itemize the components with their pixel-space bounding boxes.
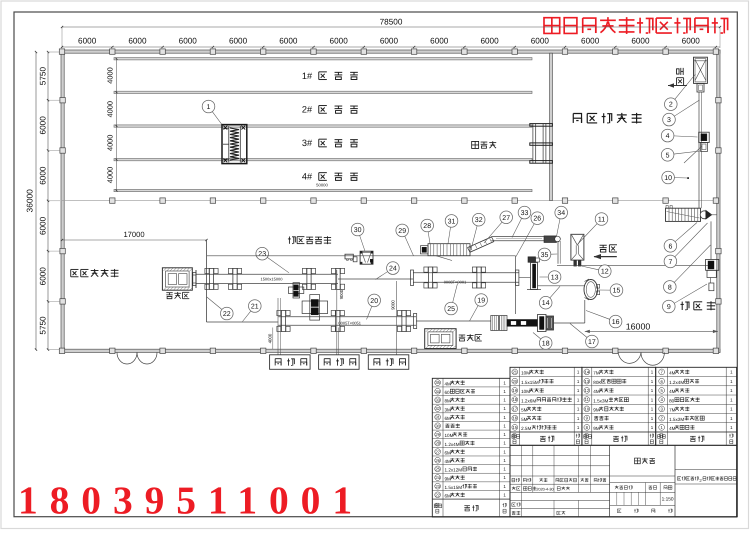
svg-text:2: 2 (669, 102, 673, 109)
svg-text:15: 15 (512, 425, 517, 430)
svg-text:9000: 9000 (339, 289, 344, 299)
svg-text:24: 24 (389, 266, 397, 273)
svg-text:6000: 6000 (380, 37, 399, 46)
svg-text:15: 15 (613, 288, 621, 295)
svg-text:78500: 78500 (380, 18, 403, 27)
svg-text:6000: 6000 (480, 37, 499, 46)
svg-text:31: 31 (435, 415, 440, 420)
svg-text:7M: 7M (669, 408, 676, 413)
svg-text:21: 21 (512, 370, 517, 375)
svg-text:6: 6 (668, 243, 672, 250)
svg-text:34: 34 (557, 210, 565, 217)
svg-text:5M: 5M (521, 417, 528, 422)
svg-text:1.2x4M: 1.2x4M (445, 442, 460, 447)
svg-text:1:150: 1:150 (662, 497, 674, 503)
svg-text:3#: 3# (302, 138, 313, 148)
svg-text:19: 19 (512, 388, 517, 393)
svg-text:4000: 4000 (106, 101, 115, 117)
svg-text:6000: 6000 (279, 37, 298, 46)
svg-text:6000: 6000 (128, 37, 147, 46)
svg-text:10: 10 (585, 406, 590, 411)
svg-text:5: 5 (666, 152, 670, 159)
svg-text:19: 19 (477, 298, 485, 305)
svg-text:25: 25 (435, 467, 440, 472)
svg-text:2.5M: 2.5M (521, 426, 531, 431)
svg-text:9M: 9M (593, 408, 600, 413)
svg-text:12: 12 (585, 388, 590, 393)
svg-text:6000: 6000 (39, 116, 48, 135)
svg-text:6000: 6000 (531, 37, 550, 46)
svg-text:13: 13 (551, 275, 559, 282)
svg-text:26: 26 (435, 458, 440, 463)
svg-text:29: 29 (398, 228, 406, 235)
svg-text:6000: 6000 (581, 37, 600, 46)
svg-text:6000: 6000 (330, 37, 349, 46)
svg-text:9M: 9M (593, 426, 600, 431)
svg-text:1.5x15M: 1.5x15M (445, 485, 463, 490)
svg-text:4000: 4000 (267, 333, 272, 343)
svg-text:10M: 10M (521, 389, 530, 394)
svg-text:4M: 4M (445, 459, 452, 464)
svg-text:1.5x3M: 1.5x3M (593, 398, 608, 403)
svg-text:23: 23 (258, 251, 266, 258)
svg-text:1#: 1# (302, 71, 313, 81)
svg-text:5750: 5750 (39, 316, 48, 335)
svg-text:6M: 6M (445, 494, 452, 499)
svg-text:4#: 4# (302, 172, 313, 182)
svg-text:6000: 6000 (682, 37, 701, 46)
svg-text:11: 11 (598, 217, 605, 224)
svg-text:4M: 4M (445, 381, 452, 386)
svg-text:35: 35 (541, 252, 549, 259)
svg-text:6000: 6000 (39, 216, 48, 235)
svg-text:34: 34 (435, 389, 440, 394)
svg-text:6000: 6000 (430, 37, 449, 46)
svg-text:9000: 9000 (391, 300, 396, 310)
svg-text:2#: 2# (302, 105, 313, 115)
svg-text:1.2x12M: 1.2x12M (445, 468, 463, 473)
svg-text:36000: 36000 (25, 189, 35, 213)
svg-text:17: 17 (512, 406, 517, 411)
svg-text:4: 4 (666, 133, 670, 140)
svg-text:4M: 4M (669, 371, 676, 376)
svg-text:1500x15000: 1500x15000 (260, 277, 283, 282)
svg-text:4M: 4M (669, 389, 676, 394)
svg-text:6000: 6000 (39, 267, 48, 286)
svg-text:35: 35 (435, 380, 440, 385)
svg-text:7: 7 (668, 259, 672, 266)
svg-text:30: 30 (435, 423, 440, 428)
svg-text:10: 10 (664, 175, 672, 182)
svg-text:6000: 6000 (39, 166, 48, 185)
svg-text:18039511001: 18039511001 (18, 479, 364, 523)
svg-text:6M: 6M (445, 450, 452, 455)
svg-text:10M: 10M (445, 433, 454, 438)
svg-text:31: 31 (448, 218, 456, 225)
svg-text:14: 14 (542, 300, 550, 307)
svg-text:4000: 4000 (106, 167, 115, 183)
svg-text:33: 33 (521, 210, 529, 217)
svg-text:16: 16 (612, 319, 620, 326)
svg-text:3: 3 (667, 117, 671, 124)
svg-text:20: 20 (370, 298, 378, 305)
svg-text:1: 1 (207, 104, 211, 111)
svg-text:8M: 8M (445, 399, 452, 404)
svg-text:18: 18 (512, 397, 517, 402)
svg-text:2020-4-30: 2020-4-30 (536, 487, 553, 491)
svg-text:6000: 6000 (631, 37, 650, 46)
svg-text:0005T×0051: 0005T×0051 (338, 320, 361, 325)
svg-text:21: 21 (251, 304, 259, 311)
svg-text:50000: 50000 (316, 182, 328, 187)
svg-text:6000: 6000 (179, 37, 198, 46)
svg-text:80: 80 (669, 398, 675, 403)
svg-text:33: 33 (435, 397, 440, 402)
svg-text:4M: 4M (593, 389, 600, 394)
svg-text:0008T×0001: 0008T×0001 (444, 280, 467, 285)
svg-text:6000: 6000 (78, 37, 97, 46)
svg-text:16: 16 (512, 416, 517, 421)
svg-text:4000: 4000 (106, 67, 115, 83)
svg-text:24: 24 (435, 475, 440, 480)
svg-text:29: 29 (435, 432, 440, 437)
svg-text:1.5x3M: 1.5x3M (669, 417, 684, 422)
svg-text:10M: 10M (521, 371, 530, 376)
svg-text:28: 28 (435, 441, 440, 446)
svg-text:32: 32 (475, 217, 483, 224)
svg-text:8: 8 (668, 284, 672, 291)
svg-text:30: 30 (354, 227, 362, 234)
svg-text:16000: 16000 (626, 321, 651, 331)
svg-text:1.2x6M: 1.2x6M (521, 398, 536, 403)
svg-text:13: 13 (585, 379, 590, 384)
svg-text:5M: 5M (521, 408, 528, 413)
svg-text:25: 25 (447, 306, 455, 313)
svg-text:1.5x15M: 1.5x15M (521, 380, 539, 385)
svg-text:3M: 3M (445, 407, 452, 412)
svg-text:12: 12 (601, 269, 609, 276)
svg-text:14: 14 (585, 370, 590, 375)
svg-text:4000: 4000 (106, 135, 115, 151)
svg-text:23: 23 (435, 484, 440, 489)
svg-text:6000: 6000 (229, 37, 248, 46)
svg-text:28: 28 (423, 223, 431, 230)
svg-text:20: 20 (512, 379, 517, 384)
svg-text:7M: 7M (593, 371, 600, 376)
svg-text:22: 22 (435, 492, 440, 497)
svg-text:6M: 6M (445, 416, 452, 421)
svg-text:4M: 4M (669, 426, 676, 431)
svg-text:80K: 80K (593, 380, 602, 385)
svg-text:9: 9 (667, 304, 671, 311)
svg-text:27: 27 (502, 215, 510, 222)
svg-text:17000: 17000 (123, 230, 144, 239)
svg-text:9M: 9M (445, 476, 452, 481)
svg-text:17: 17 (588, 339, 596, 346)
svg-text:5750: 5750 (39, 67, 48, 86)
svg-text:26: 26 (533, 216, 541, 223)
svg-text:60: 60 (445, 390, 451, 395)
svg-text:22: 22 (223, 311, 231, 318)
svg-text:27: 27 (435, 449, 440, 454)
svg-text:1.2x4M: 1.2x4M (669, 380, 684, 385)
svg-text:11: 11 (585, 397, 590, 402)
svg-text:18: 18 (542, 341, 550, 348)
svg-text:32: 32 (435, 406, 440, 411)
